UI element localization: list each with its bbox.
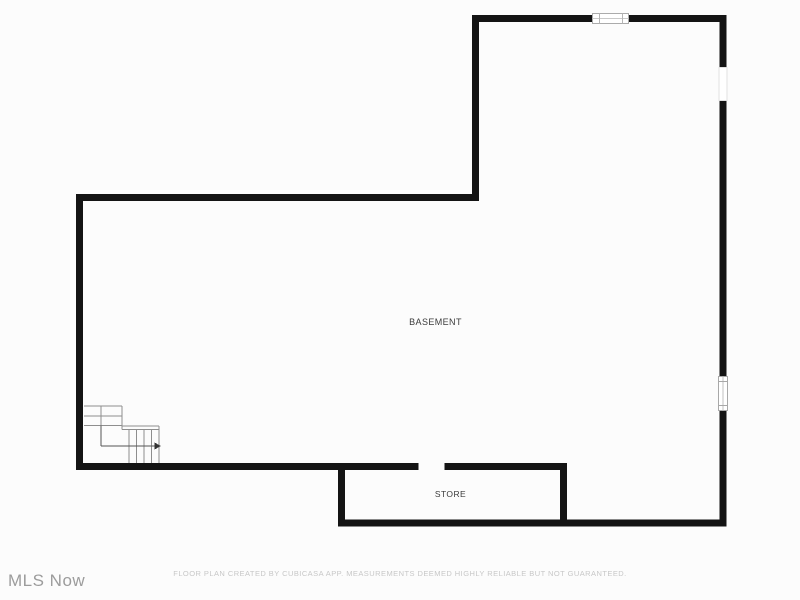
wall-segment [445,463,568,470]
wall-segment [76,194,479,201]
wall-segment [472,15,479,201]
floorplan-drawing [0,0,800,600]
wall-segment [76,194,83,470]
floorplan-page: BASEMENT STORE MLS Now FLOOR PLAN CREATE… [0,0,800,600]
disclaimer-text: FLOOR PLAN CREATED BY CUBICASA APP. MEAS… [0,569,800,578]
walls [76,15,727,527]
stair-walking-line [101,426,155,447]
wall-segment [720,15,727,68]
opening-right-upper [719,68,727,101]
room-label-store: STORE [408,489,493,499]
wall-segment [720,100,727,377]
wall-segment [720,410,727,527]
wall-segment [338,463,345,527]
window-top [593,14,629,24]
wall-segment [472,15,593,22]
wall-segment [628,15,727,22]
opening-right-upper-icon [719,68,727,101]
wall-segment [76,463,419,470]
staircase [84,406,161,463]
stair-direction-arrow-icon [155,443,162,450]
wall-segment [560,463,567,523]
wall-segment [338,520,727,527]
room-label-basement: BASEMENT [393,317,478,327]
window-right-lower [719,377,728,411]
